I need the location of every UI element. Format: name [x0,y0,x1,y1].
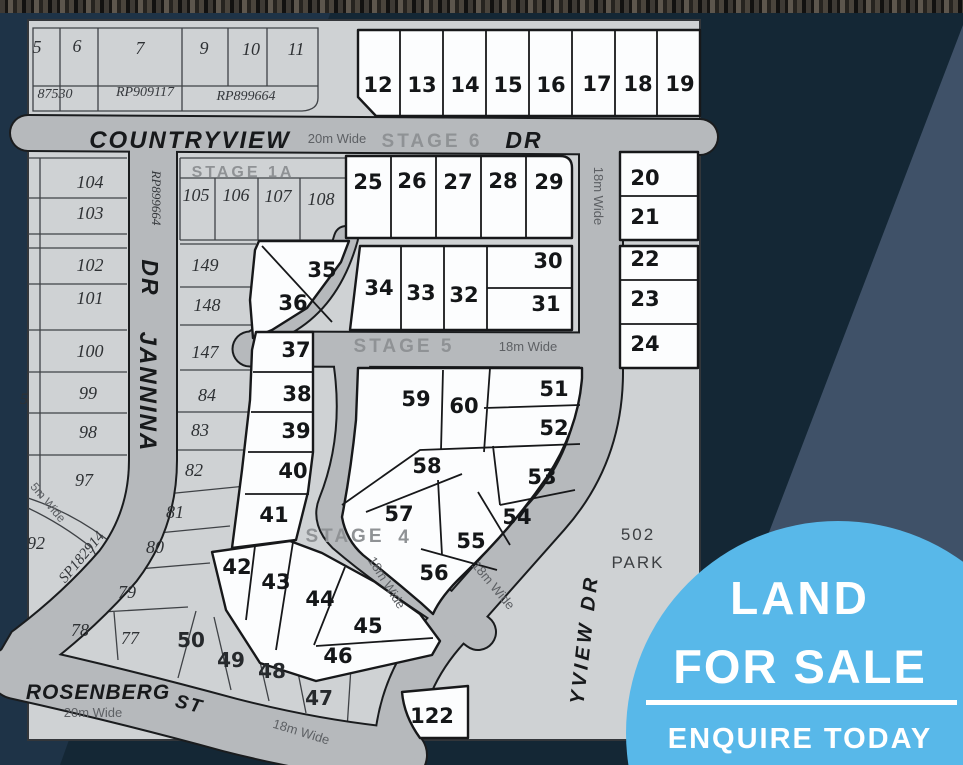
lot-label-59: 59 [401,387,430,411]
lot-label-35: 35 [307,258,336,282]
lot-label-77: 77 [121,628,140,648]
lot-label-81: 81 [166,502,184,522]
lot-label-51: 51 [539,377,568,401]
lot-label-80: 80 [146,537,164,557]
lot-label-23: 23 [630,287,659,311]
plan-label-rp909117: RP909117 [115,85,175,100]
street-label-stage4-number: 4 [398,527,412,548]
lot-label-10: 10 [242,39,260,59]
lot-label-106: 106 [223,185,250,205]
lot-label-52: 52 [539,416,568,440]
lot-label-104: 104 [77,172,104,192]
lot-label-14: 14 [450,73,479,97]
lot-label-92: 92 [27,533,45,553]
lot-label-34: 34 [364,276,393,300]
street-label-rosenberg: ROSENBERG [26,681,170,704]
lot-label-107: 107 [265,186,293,206]
lot-label-30: 30 [533,249,562,273]
lot-label-49: 49 [217,648,245,672]
street-label-stage6-dr: DR [505,127,542,153]
lot-label-105: 105 [183,185,210,205]
park-name-label: PARK [611,553,664,572]
lot-label-149: 149 [192,255,219,275]
lot-label-83: 83 [191,420,209,440]
lot-label-82: 82 [185,460,203,480]
lot-label-25: 25 [353,170,382,194]
lot-label-37: 37 [281,338,310,362]
lot-label-60: 60 [449,394,478,418]
lot-label-39: 39 [281,419,310,443]
lot-label-99: 99 [79,383,97,403]
lot-label-38: 38 [282,382,311,406]
lot-label-102: 102 [77,255,104,275]
lot-label-26: 26 [397,169,426,193]
lot-label-41: 41 [259,503,288,527]
lot-label-56: 56 [419,561,448,585]
lot-label-31: 31 [531,292,560,316]
lot-label-24: 24 [630,332,659,356]
lot-label-9: 9 [200,38,209,58]
width-label-18m-stage5: 18m Wide [499,339,558,354]
lot-label-7: 7 [136,38,146,58]
lot-label-33: 33 [406,281,435,305]
lot-label-edge-partial: 5 [20,391,28,408]
badge-line3: ENQUIRE TODAY [668,723,933,756]
lot-label-16: 16 [536,73,565,97]
badge-line2: FOR SALE [673,639,927,694]
lot-label-45: 45 [353,614,382,638]
lot-label-148: 148 [194,295,221,315]
lot-label-54: 54 [502,505,531,529]
badge-line1: LAND [730,571,870,625]
lot-label-58: 58 [412,454,441,478]
lot-label-27: 27 [443,170,472,194]
lot-label-108: 108 [308,189,335,209]
lot-label-43: 43 [261,570,290,594]
street-label-jannina: JANNINA [134,332,161,453]
park-number-label: 502 [621,525,655,544]
street-label-stage6: STAGE 6 [382,131,483,152]
lot-label-78: 78 [71,620,89,640]
lot-label-11: 11 [288,39,305,59]
lot-label-17: 17 [582,72,611,96]
lot-block-25-29 [346,156,572,238]
street-label-jannina-dr: DR [137,259,163,296]
lot-label-100: 100 [77,341,104,361]
width-label-20m-top: 20m Wide [308,131,367,146]
lot-label-122: 122 [410,704,454,728]
lot-label-57: 57 [384,502,413,526]
lot-label-47: 47 [305,686,333,710]
lot-label-103: 103 [77,203,104,223]
plan-label-87530: 87530 [38,87,73,102]
lot-label-84: 84 [198,385,216,405]
lot-label-21: 21 [630,205,659,229]
lot-label-13: 13 [407,73,436,97]
street-label-countryview: COUNTRYVIEW [89,127,291,154]
lot-label-28: 28 [488,169,517,193]
lot-label-46: 46 [323,644,352,668]
lot-label-50: 50 [177,628,205,652]
lot-label-42: 42 [222,555,251,579]
plan-label-rp899664: RP899664 [215,89,275,104]
lot-label-32: 32 [449,283,478,307]
lot-label-29: 29 [534,170,563,194]
badge-underline [646,700,957,705]
lot-label-18: 18 [623,72,652,96]
lot-label-15: 15 [493,73,522,97]
lot-label-53: 53 [527,465,556,489]
lot-label-147: 147 [192,342,220,362]
width-label-18m-right: 18m Wide [591,167,606,226]
lot-label-55: 55 [456,529,485,553]
lot-label-98: 98 [79,422,97,442]
stage-1a-label: STAGE 1A [192,164,295,181]
lot-label-44: 44 [305,587,334,611]
width-label-20m-rosenberg: 20m Wide [64,705,123,720]
lot-label-101: 101 [77,288,104,308]
lot-label-79: 79 [118,582,136,602]
lot-label-40: 40 [278,459,307,483]
lot-label-19: 19 [665,72,694,96]
lot-label-22: 22 [630,247,659,271]
lot-label-20: 20 [630,166,659,190]
lot-label-5: 5 [33,37,42,57]
street-label-stage5: STAGE 5 [354,336,455,357]
lot-label-12: 12 [363,73,392,97]
street-label-stage4: STAGE [305,526,384,547]
plan-label-rp899664-side: RP899664 [149,170,164,226]
top-photo-texture-strip [0,0,963,13]
land-sale-flyer: COUNTRYVIEW 20m Wide STAGE 6 DR STAGE 1A… [0,0,963,765]
lot-label-36: 36 [278,291,307,315]
lot-label-48: 48 [258,659,286,683]
lot-label-97: 97 [75,470,94,490]
lot-label-6: 6 [73,36,82,56]
